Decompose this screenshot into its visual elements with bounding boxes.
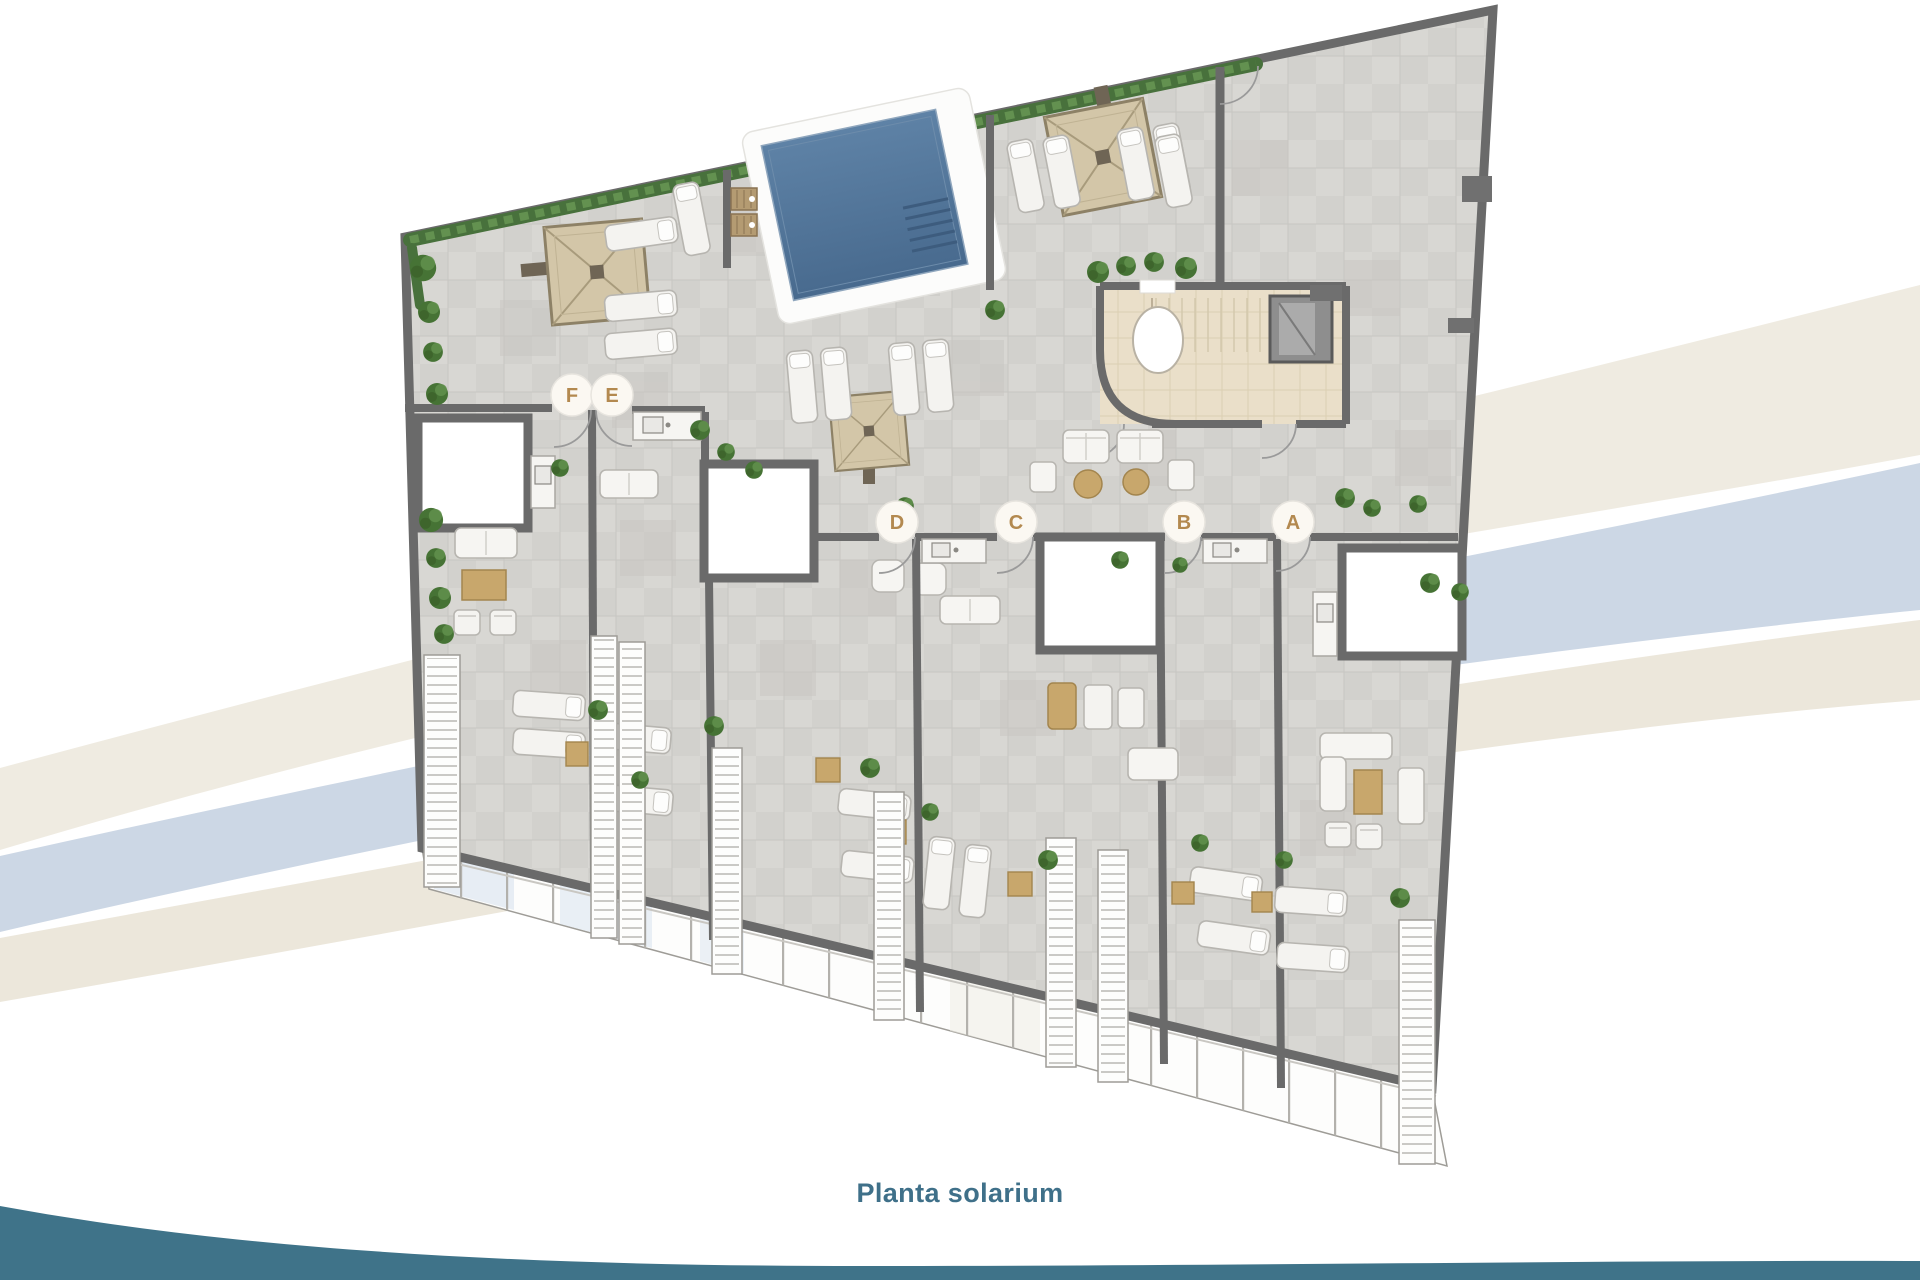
stair-run (1098, 850, 1128, 1082)
unit-marker-d: D (876, 501, 918, 543)
kitchenette (1203, 539, 1267, 563)
bar-table (1133, 307, 1183, 373)
round-table (1074, 470, 1102, 498)
sun-lounger (922, 339, 954, 413)
unit-marker-b-label: B (1177, 512, 1191, 534)
unit-marker-a: A (1272, 501, 1314, 543)
unit-marker-c: C (995, 501, 1037, 543)
sun-lounger (604, 328, 678, 360)
lounge-sofa (1063, 430, 1109, 463)
stair-run (591, 636, 617, 938)
sun-lounger (888, 342, 920, 416)
floor-caption: Planta solarium (0, 1178, 1920, 1209)
side-table (1008, 872, 1032, 896)
stair-run (712, 748, 742, 974)
sun-lounger (604, 290, 678, 322)
stool (872, 560, 904, 592)
sun-lounger (1276, 942, 1350, 973)
lounge-sofa (1117, 430, 1163, 463)
chair (490, 610, 516, 635)
sun-lounger (1274, 886, 1348, 917)
corner-sofa (1320, 757, 1346, 811)
unit-divider-wall (916, 539, 920, 1012)
unit-divider-wall (1277, 539, 1281, 1088)
skylight-box (1040, 537, 1160, 650)
kitchenette (922, 539, 986, 563)
sun-lounger (512, 690, 586, 721)
page: F E D C B A Planta solarium (0, 0, 1920, 1280)
side-table (1172, 882, 1194, 904)
unit-marker-c-label: C (1009, 512, 1023, 534)
side-table (1030, 462, 1056, 492)
side-table (1168, 460, 1194, 490)
sun-lounger (820, 347, 852, 421)
unit-marker-a-label: A (1286, 512, 1300, 534)
stair-run (874, 792, 904, 1020)
stair-run (1046, 838, 1076, 1067)
kitchenette (633, 412, 701, 440)
lounge-chair (1084, 685, 1112, 729)
sun-lounger (786, 350, 818, 424)
stair-run (1399, 920, 1435, 1164)
stair-run (619, 642, 645, 944)
stair-run (424, 655, 460, 887)
side-table (816, 758, 840, 782)
side-table (1398, 768, 1424, 824)
elevator (1270, 296, 1332, 362)
chair (1356, 824, 1382, 849)
coffee-table (1354, 770, 1382, 814)
lounge-chair (1118, 688, 1144, 728)
skylight-box (1342, 548, 1462, 656)
lounge-chair (1048, 683, 1076, 729)
kitchenette (531, 456, 555, 508)
side-table (566, 742, 588, 766)
unit-marker-d-label: D (890, 512, 904, 534)
kitchenette (1313, 592, 1337, 656)
pergola-mast (521, 262, 548, 277)
floor-plan-rendering: F E D C B A (0, 0, 1920, 1280)
door-mat (1140, 280, 1175, 293)
unit-marker-e-label: E (605, 385, 618, 407)
coffee-table (462, 570, 506, 600)
round-table (1123, 469, 1149, 495)
chair (454, 610, 480, 635)
footer-wave (0, 1206, 1920, 1280)
lounge-sofa (1128, 748, 1178, 780)
unit-marker-b: B (1163, 501, 1205, 543)
unit-marker-e: E (591, 374, 633, 416)
corner-sofa (1320, 733, 1392, 759)
chair (1325, 822, 1351, 847)
side-table (1252, 892, 1272, 912)
skylight-box (704, 464, 814, 578)
unit-marker-f: F (551, 374, 593, 416)
unit-marker-f-label: F (566, 385, 578, 407)
